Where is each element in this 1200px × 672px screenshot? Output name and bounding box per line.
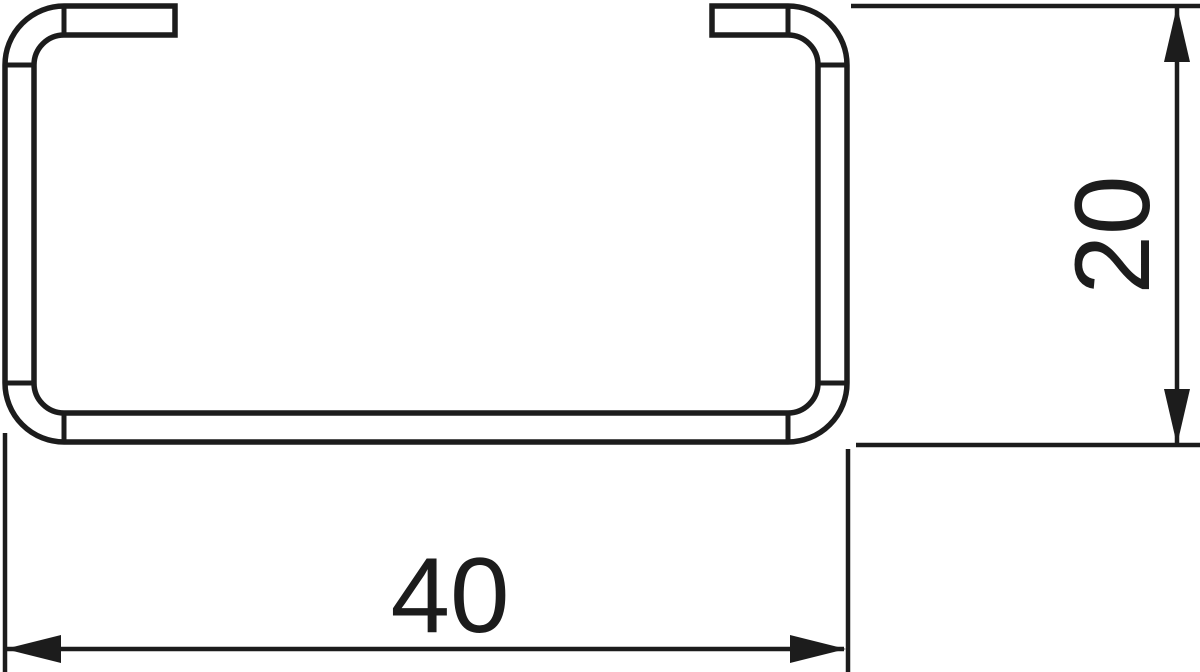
c-profile-cross-section-drawing: 20 40 xyxy=(0,0,1200,672)
width-dim-arrow-left-icon xyxy=(5,635,61,663)
width-dimension: 40 xyxy=(5,433,848,672)
width-dim-label: 40 xyxy=(390,535,509,655)
height-dim-label: 20 xyxy=(1052,175,1172,294)
bend-tangent-lines xyxy=(5,6,847,442)
width-dim-arrow-right-icon xyxy=(790,635,846,663)
height-dim-arrow-up-icon xyxy=(1164,6,1190,62)
technical-drawing-page: 20 40 xyxy=(0,0,1200,672)
height-dimension: 20 xyxy=(851,6,1200,445)
height-dim-arrow-down-icon xyxy=(1164,389,1190,445)
c-profile-outline xyxy=(5,6,847,442)
